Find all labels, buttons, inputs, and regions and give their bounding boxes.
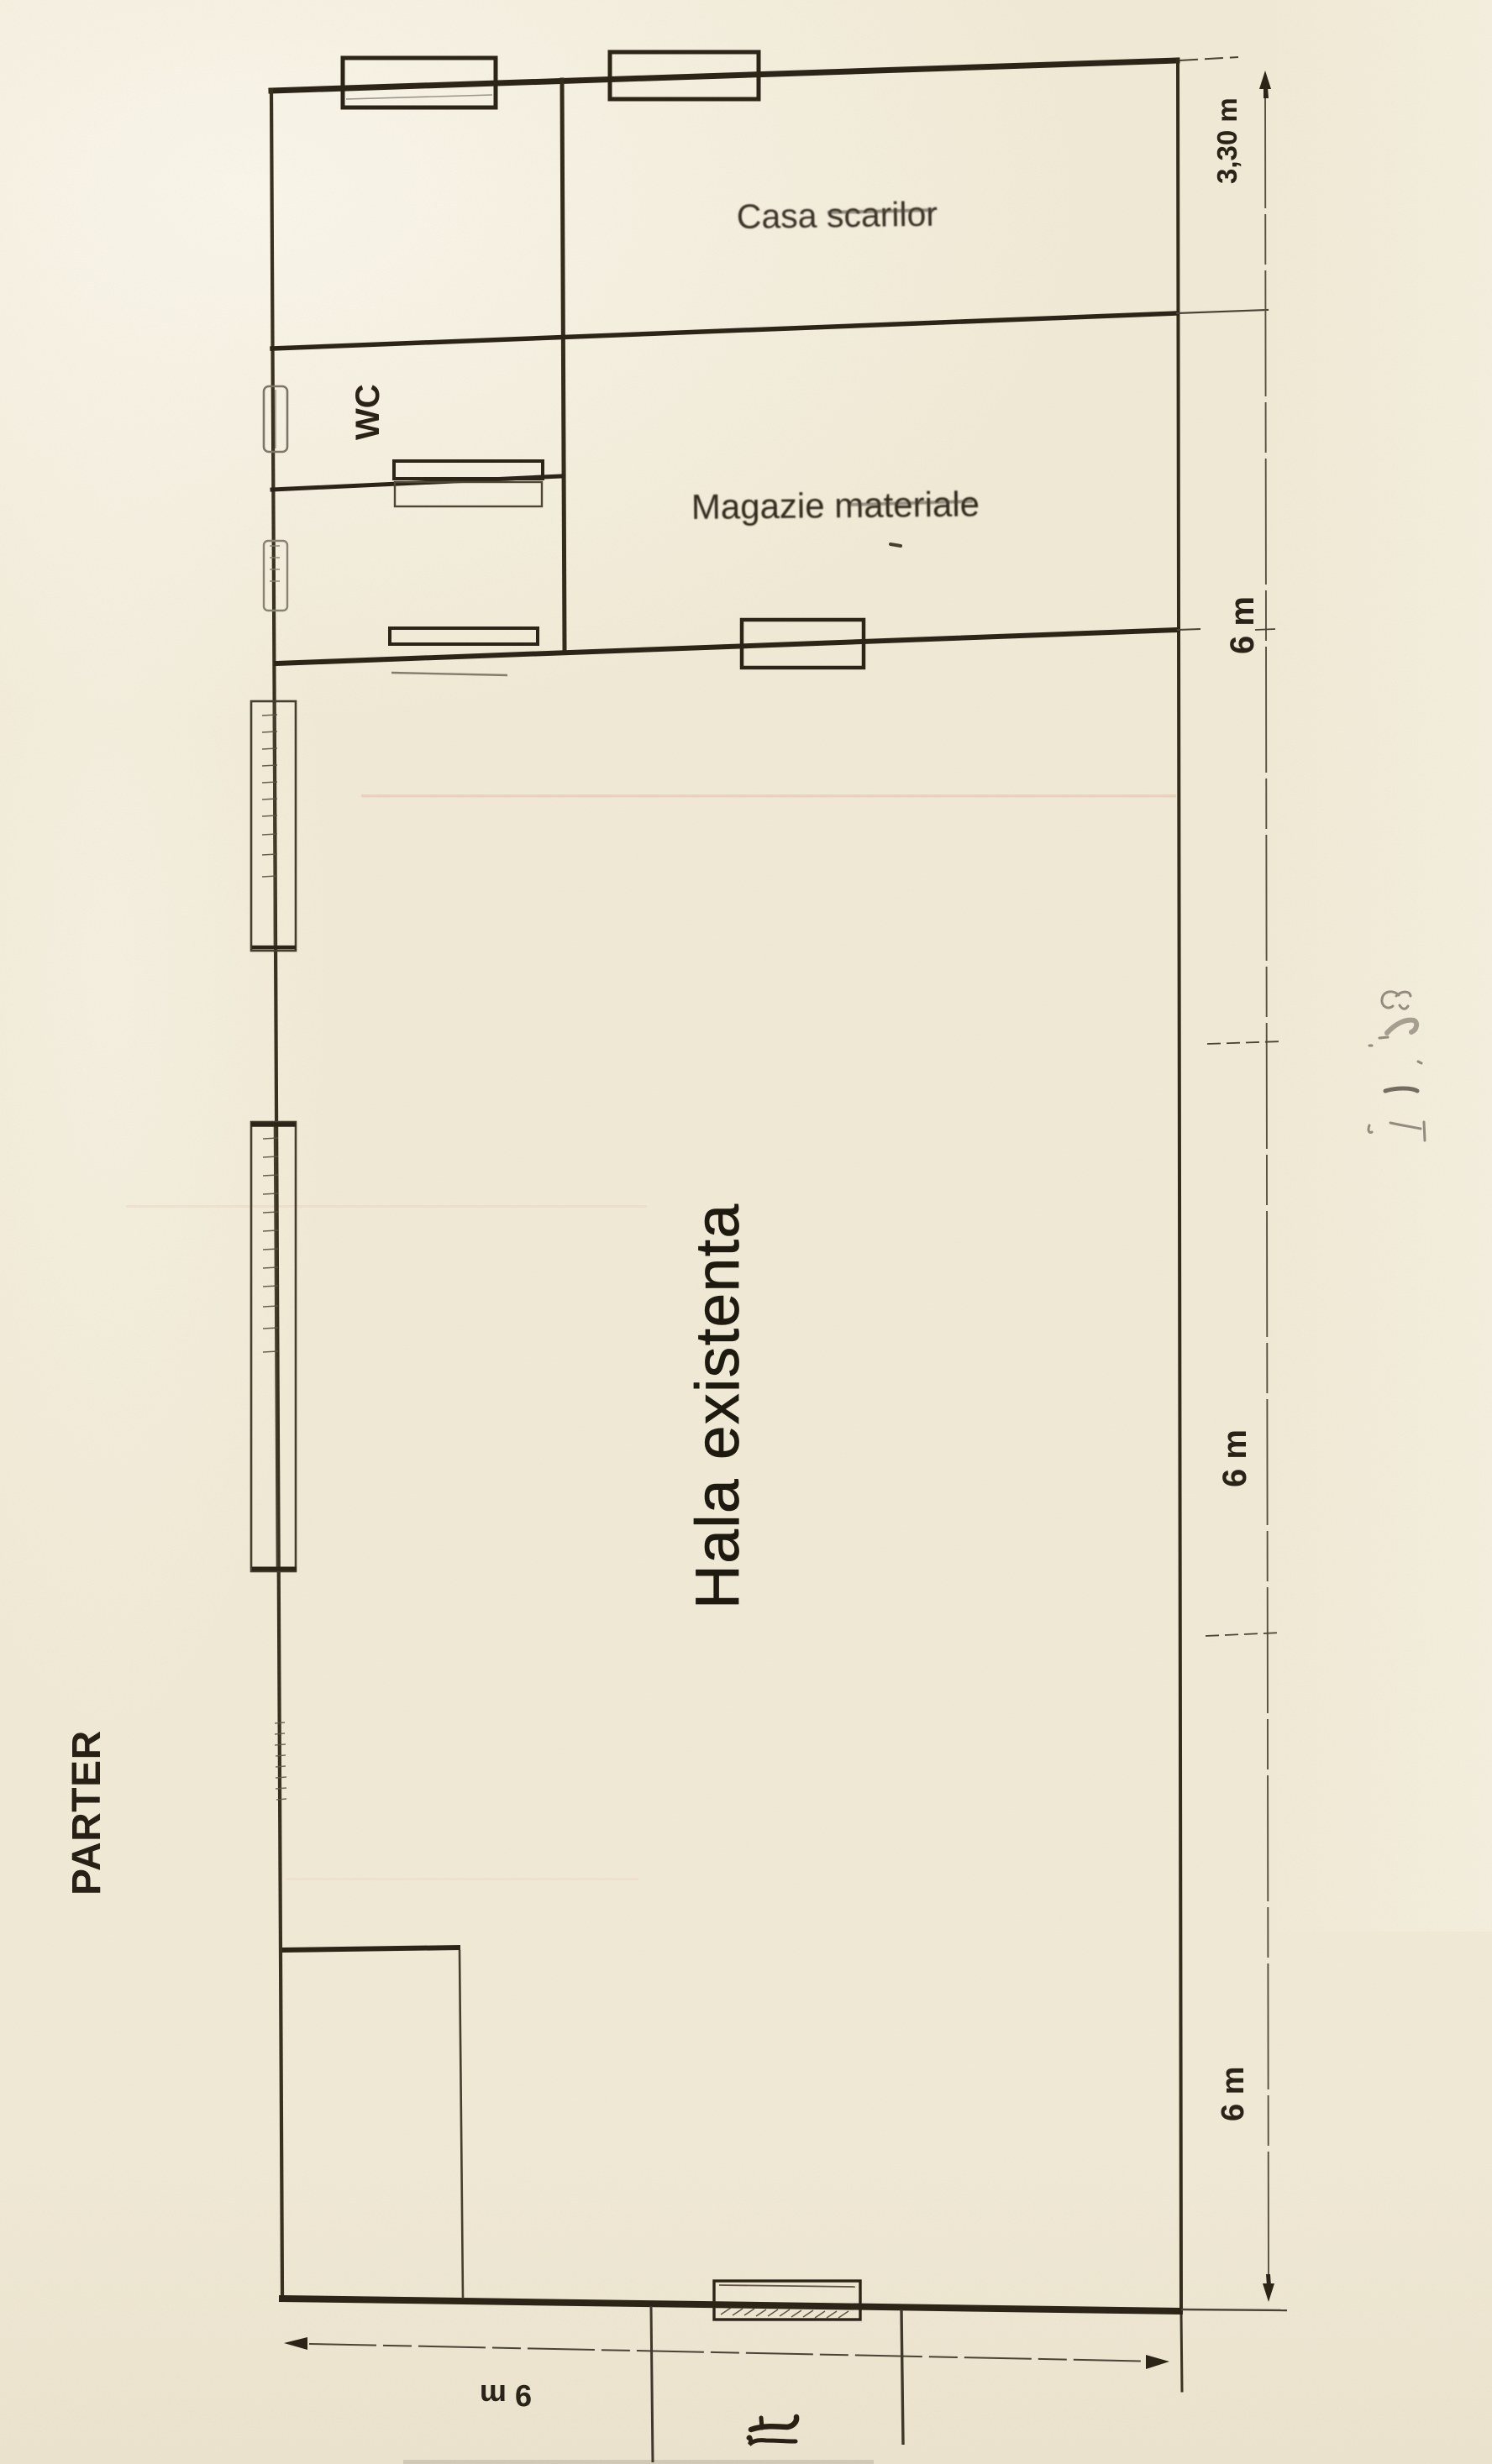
svg-text:Casa scarilor: Casa scarilor xyxy=(736,195,938,236)
svg-text:3,30 m: 3,30 m xyxy=(1211,97,1242,184)
svg-text:Hala existenta: Hala existenta xyxy=(684,1203,752,1609)
svg-text:6 m: 6 m xyxy=(1216,2067,1251,2121)
svg-text:WC: WC xyxy=(349,384,386,440)
svg-text:6 m: 6 m xyxy=(1224,596,1261,654)
svg-text:Magazie materiale: Magazie materiale xyxy=(691,484,980,527)
svg-text:PARTER: PARTER xyxy=(65,1730,109,1895)
svg-text:9 m: 9 m xyxy=(480,2378,532,2413)
svg-text:6 m: 6 m xyxy=(1216,1429,1253,1487)
